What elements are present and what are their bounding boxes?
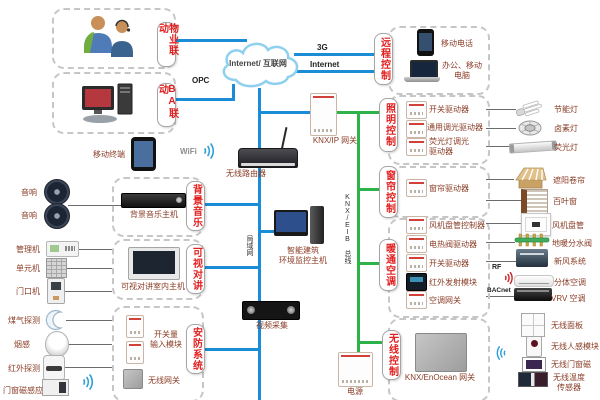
- connector-intercom-box: [203, 266, 260, 269]
- connector-knxip-gateway: [258, 111, 312, 114]
- speaker-icon: [44, 203, 70, 229]
- knx-ip-gateway-icon: [310, 93, 337, 136]
- speaker-label: 音响: [21, 211, 37, 221]
- wireless-magnet-icon: [522, 357, 546, 372]
- ba-linkage-label: BA联动: [157, 83, 176, 127]
- window-magnet-icon: [42, 379, 69, 396]
- manifold-icon: [514, 233, 550, 247]
- fancoil-label: 风机盘管: [552, 221, 584, 231]
- security-wireless-gateway-label: 无线网关: [148, 376, 180, 386]
- enocean-gateway-icon: [415, 333, 467, 372]
- wifi-waves-icon: [199, 141, 217, 161]
- wireless-pir-icon: [526, 336, 542, 357]
- knx-bus-trunk: [357, 111, 360, 354]
- rf-label: RF: [492, 264, 501, 271]
- wire-doorphone: [63, 291, 112, 292]
- wire-blinds: [486, 200, 521, 201]
- switch-actuator-icon: [406, 101, 427, 119]
- tablet-icon: [131, 137, 156, 171]
- office-computer-label: 办公、移动 电脑: [439, 61, 485, 80]
- knx-bus-label: KNX/EIB 总线: [344, 194, 351, 264]
- valve-actuator-label: 电热阀驱动器: [429, 240, 477, 250]
- laptop-base-icon: [404, 77, 440, 82]
- security-label: 安防系统: [186, 324, 205, 374]
- wireless-temp-sensor-label: 无线温度 传感器: [549, 373, 589, 392]
- valve-actuator-icon: [406, 235, 427, 253]
- remote-control-label: 远程控制: [374, 33, 393, 85]
- fresh-air-icon: [516, 249, 548, 267]
- door-station-label: 门口机: [16, 287, 40, 297]
- door-station-icon: [47, 278, 65, 304]
- wire-halogen: [486, 128, 516, 129]
- awning-label: 遮阳卷帘: [553, 176, 585, 186]
- wireless-pir-label: 无线人感模块: [551, 342, 599, 352]
- switch-actuator-label: 开关驱动器: [429, 259, 469, 269]
- window-magnet-label: 门窗磁感应: [3, 386, 43, 396]
- fluorescent-dimmer-label: 荧光灯调光 驱动器: [429, 137, 469, 156]
- power-supply-icon: [338, 352, 373, 387]
- link-opc-label: OPC: [192, 76, 209, 85]
- fresh-air-label: 新风系统: [554, 257, 586, 267]
- wire-manager: [77, 249, 112, 250]
- fluorescent-tube-label: 荧光灯: [554, 143, 578, 153]
- hvac-label: 暖通空调: [379, 239, 398, 291]
- wireless-panel-icon: [521, 313, 545, 337]
- unit-station-icon: [46, 258, 67, 278]
- dimmer-actuator-label: 通用调光驱动器: [427, 123, 483, 133]
- ir-emitter-icon: [406, 273, 427, 291]
- wire-cfl: [486, 109, 516, 110]
- curtain-actuator-label: 窗帘驱动器: [429, 184, 469, 194]
- monitor-host-label: 智能建筑 环境监控主机: [268, 246, 338, 265]
- wireless-temp-sensor-icon: [518, 372, 548, 387]
- blinds-label: 百叶窗: [553, 197, 577, 207]
- lighting-label: 照明控制: [379, 98, 398, 152]
- halogen-lamp-icon: [517, 119, 544, 137]
- connector-security-box: [203, 348, 260, 351]
- monitor-host-screen-icon: [274, 210, 308, 236]
- awning-icon: [512, 164, 548, 190]
- music-host-label: 背景音乐主机: [124, 210, 184, 220]
- blinds-icon: [521, 189, 548, 215]
- halogen-lamp-label: 卤素灯: [554, 124, 578, 134]
- gas-detector-icon: [43, 310, 67, 330]
- wifi-label: WiFi: [180, 147, 197, 156]
- dimmer-actuator-icon: [406, 120, 427, 138]
- pir-detector-label: 红外探测: [8, 364, 40, 374]
- knx-bus-to-wireless: [358, 341, 384, 344]
- cfl-lamp-label: 节能灯: [554, 105, 578, 115]
- ir-emitter-label: 红外发射模块: [429, 278, 477, 288]
- wireless-router-label: 无线路由器: [226, 169, 266, 179]
- fluorescent-dimmer-icon: [406, 138, 427, 156]
- lan-label: 局域网: [246, 235, 253, 256]
- wifi-waves-icon: [78, 372, 96, 392]
- gas-detector-label: 煤气探测: [8, 316, 40, 326]
- wire-pir: [65, 367, 112, 368]
- monitor-host-tower-icon: [310, 206, 324, 244]
- lan-trunk-line: [258, 88, 261, 400]
- connector-music-box: [203, 203, 260, 206]
- ac-gateway-icon: [406, 291, 427, 309]
- manifold-label: 地暖分水阀: [552, 239, 592, 249]
- mobile-phone-icon: [417, 29, 434, 56]
- intercom-label: 可视对讲: [186, 244, 205, 294]
- ba-computer-icon: [80, 82, 136, 124]
- link-internet-label: Internet: [310, 60, 339, 69]
- vrv-ac-label: VRV 空调: [551, 294, 586, 304]
- input-module-label: 开关量 输入模块: [146, 330, 186, 349]
- security-wireless-gateway-icon: [123, 369, 143, 389]
- connector-ba-cloud: [173, 98, 235, 101]
- split-ac-label: 分体空调: [554, 278, 586, 288]
- smoke-detector-icon: [45, 331, 69, 357]
- wire-vrv: [486, 296, 515, 297]
- wire-fancoil: [486, 223, 522, 224]
- property-linkage-label: 物业联动: [157, 22, 176, 67]
- wifi-waves-icon: [494, 342, 510, 364]
- switch-actuator-label: 开关驱动器: [429, 105, 469, 115]
- manager-station-label: 管理机: [16, 245, 40, 255]
- knx-bus-to-curtain: [358, 188, 381, 191]
- link-3g-label: 3G: [317, 43, 328, 52]
- speaker-icon: [44, 179, 70, 205]
- wire-smoke: [68, 344, 112, 345]
- wireless-router-icon: [238, 148, 298, 168]
- vrv-ac-icon: [514, 288, 552, 301]
- mobile-terminal-label: 移动终端: [93, 150, 125, 160]
- people-icon: [76, 13, 140, 59]
- unit-station-label: 单元机: [16, 264, 40, 274]
- power-supply-label: 电源: [347, 387, 363, 397]
- pir-detector-icon: [43, 355, 65, 381]
- input-module-icon: [126, 315, 144, 338]
- intercom-host-icon: [128, 247, 180, 280]
- manager-station-icon: [46, 241, 79, 257]
- video-capture-label: 视频采集: [256, 321, 288, 331]
- intercom-host-label: 可视对讲室内主机: [120, 282, 186, 292]
- music-host-icon: [121, 193, 186, 208]
- rf-waves-icon: [501, 268, 515, 288]
- connector-3g: [294, 53, 374, 56]
- internet-cloud-label: Internet/ 互联网: [218, 58, 298, 69]
- knx-smart-building-diagram: 物业联动 BA联动 背景音乐 可视对讲 安防系统 远程控制 照明控制 窗帘控制 …: [0, 0, 600, 400]
- smoke-detector-label: 烟感: [14, 340, 30, 350]
- wire-manifold: [486, 242, 515, 243]
- fancoil-controller-icon: [406, 216, 427, 234]
- wire-freshair: [486, 261, 517, 262]
- speaker-label: 音响: [21, 188, 37, 198]
- mobile-phone-label: 移动电话: [441, 39, 473, 49]
- enocean-gateway-label: KNX/EnOcean 网关: [400, 373, 480, 383]
- fancoil-controller-label: 风机盘管控制器: [429, 221, 485, 231]
- wire-awning: [486, 179, 514, 180]
- cfl-lamp-icon: [514, 99, 546, 119]
- wireless-panel-label: 无线面板: [551, 321, 583, 331]
- knx-ip-gateway-label: KNX/IP 网关: [310, 136, 360, 146]
- music-label: 背景音乐: [186, 181, 205, 231]
- curtain-actuator-icon: [406, 179, 427, 197]
- bacnet-label: BACnet: [487, 287, 511, 294]
- knx-bus-to-hvac: [358, 262, 381, 265]
- curtain-label: 窗帘控制: [379, 166, 398, 218]
- switch-actuator-icon: [406, 254, 427, 272]
- input-module-icon: [126, 341, 144, 364]
- wireless-magnet-label: 无线门窗磁: [551, 360, 591, 370]
- wire-unit: [65, 268, 112, 269]
- wire-gas: [66, 320, 112, 321]
- split-ac-icon: [514, 275, 554, 287]
- fluorescent-tube-icon: [509, 140, 558, 153]
- video-capture-icon: [242, 301, 300, 320]
- ac-gateway-label: 空调网关: [429, 296, 461, 306]
- wireless-control-label: 无线控制: [382, 330, 401, 380]
